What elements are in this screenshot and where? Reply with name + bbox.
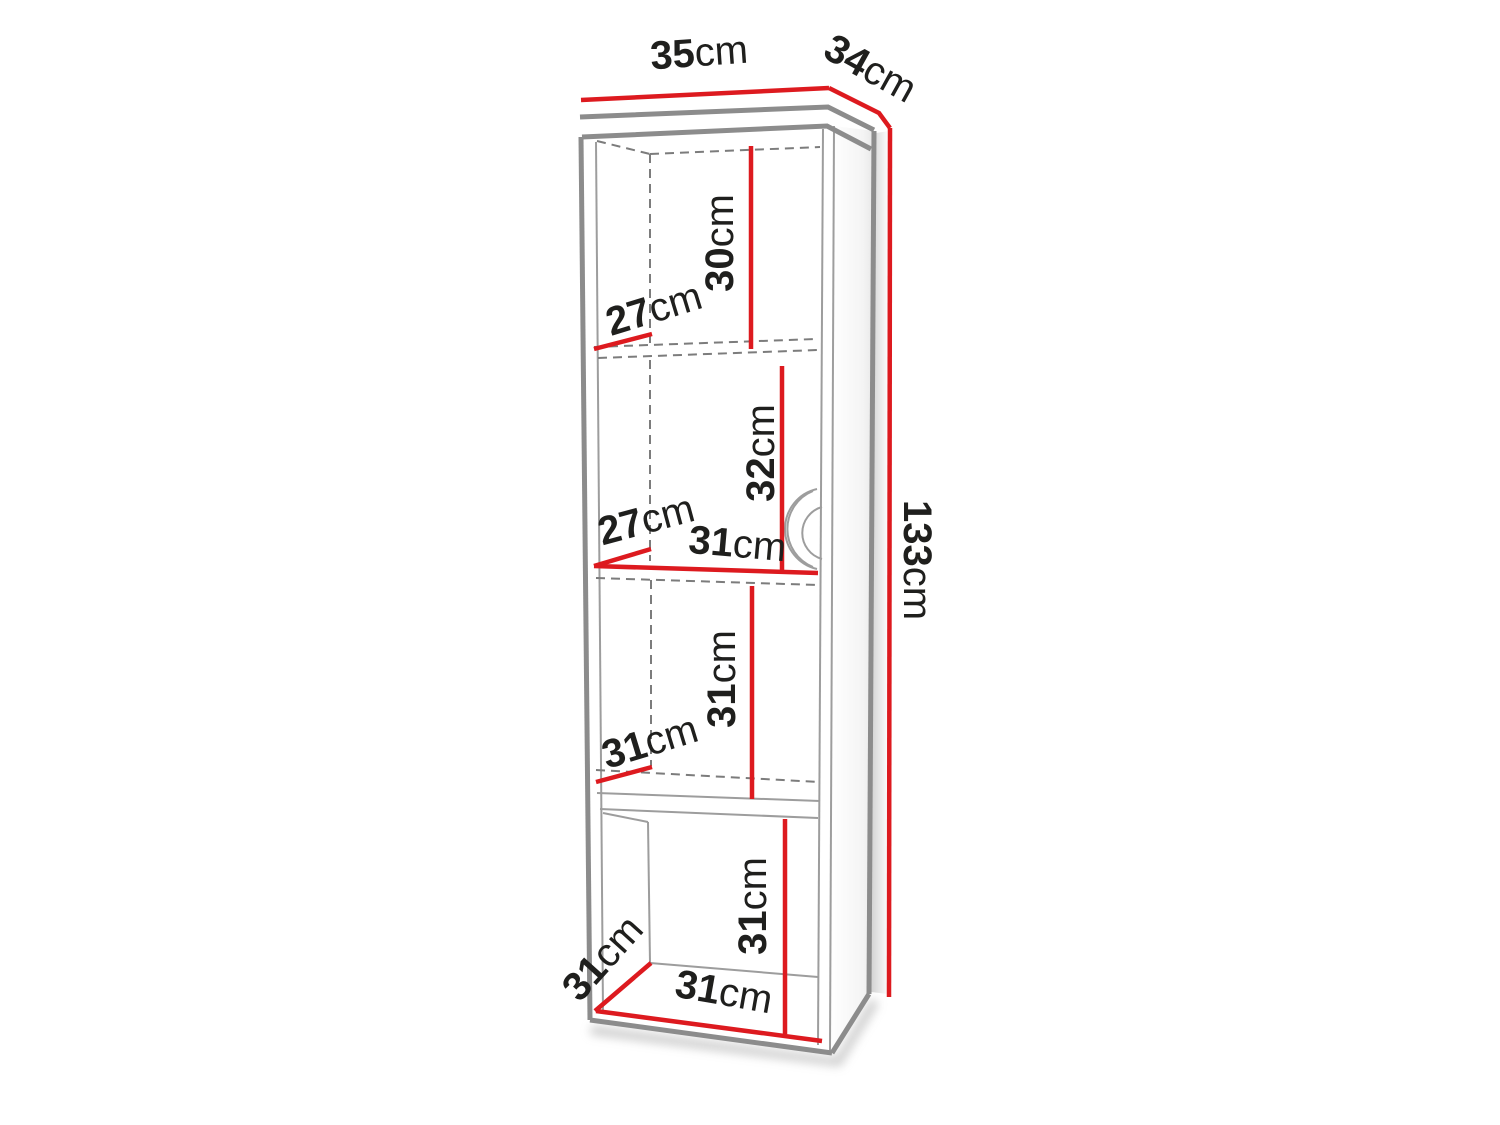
label-shelf4-height: 31cm xyxy=(731,857,775,955)
diagram-canvas: 35cm 34cm 133cm 30cm 27cm 32cm 27cm 31cm… xyxy=(0,0,1500,1125)
label-width-top: 35cm xyxy=(649,28,750,79)
label-depth-top: 34cm xyxy=(817,26,924,112)
label-shelf1-height: 30cm xyxy=(698,194,742,292)
cabinet-dimension-diagram: 35cm 34cm 133cm 30cm 27cm 32cm 27cm 31cm… xyxy=(0,0,1500,1125)
label-shelf2-width: 31cm xyxy=(687,518,788,570)
dimension-line-width-top xyxy=(581,88,829,100)
label-shelf3-height: 31cm xyxy=(700,630,744,728)
label-shelf2-height: 32cm xyxy=(739,404,783,502)
dimension-line-height-total xyxy=(889,128,890,997)
label-height-total: 133cm xyxy=(895,500,939,620)
